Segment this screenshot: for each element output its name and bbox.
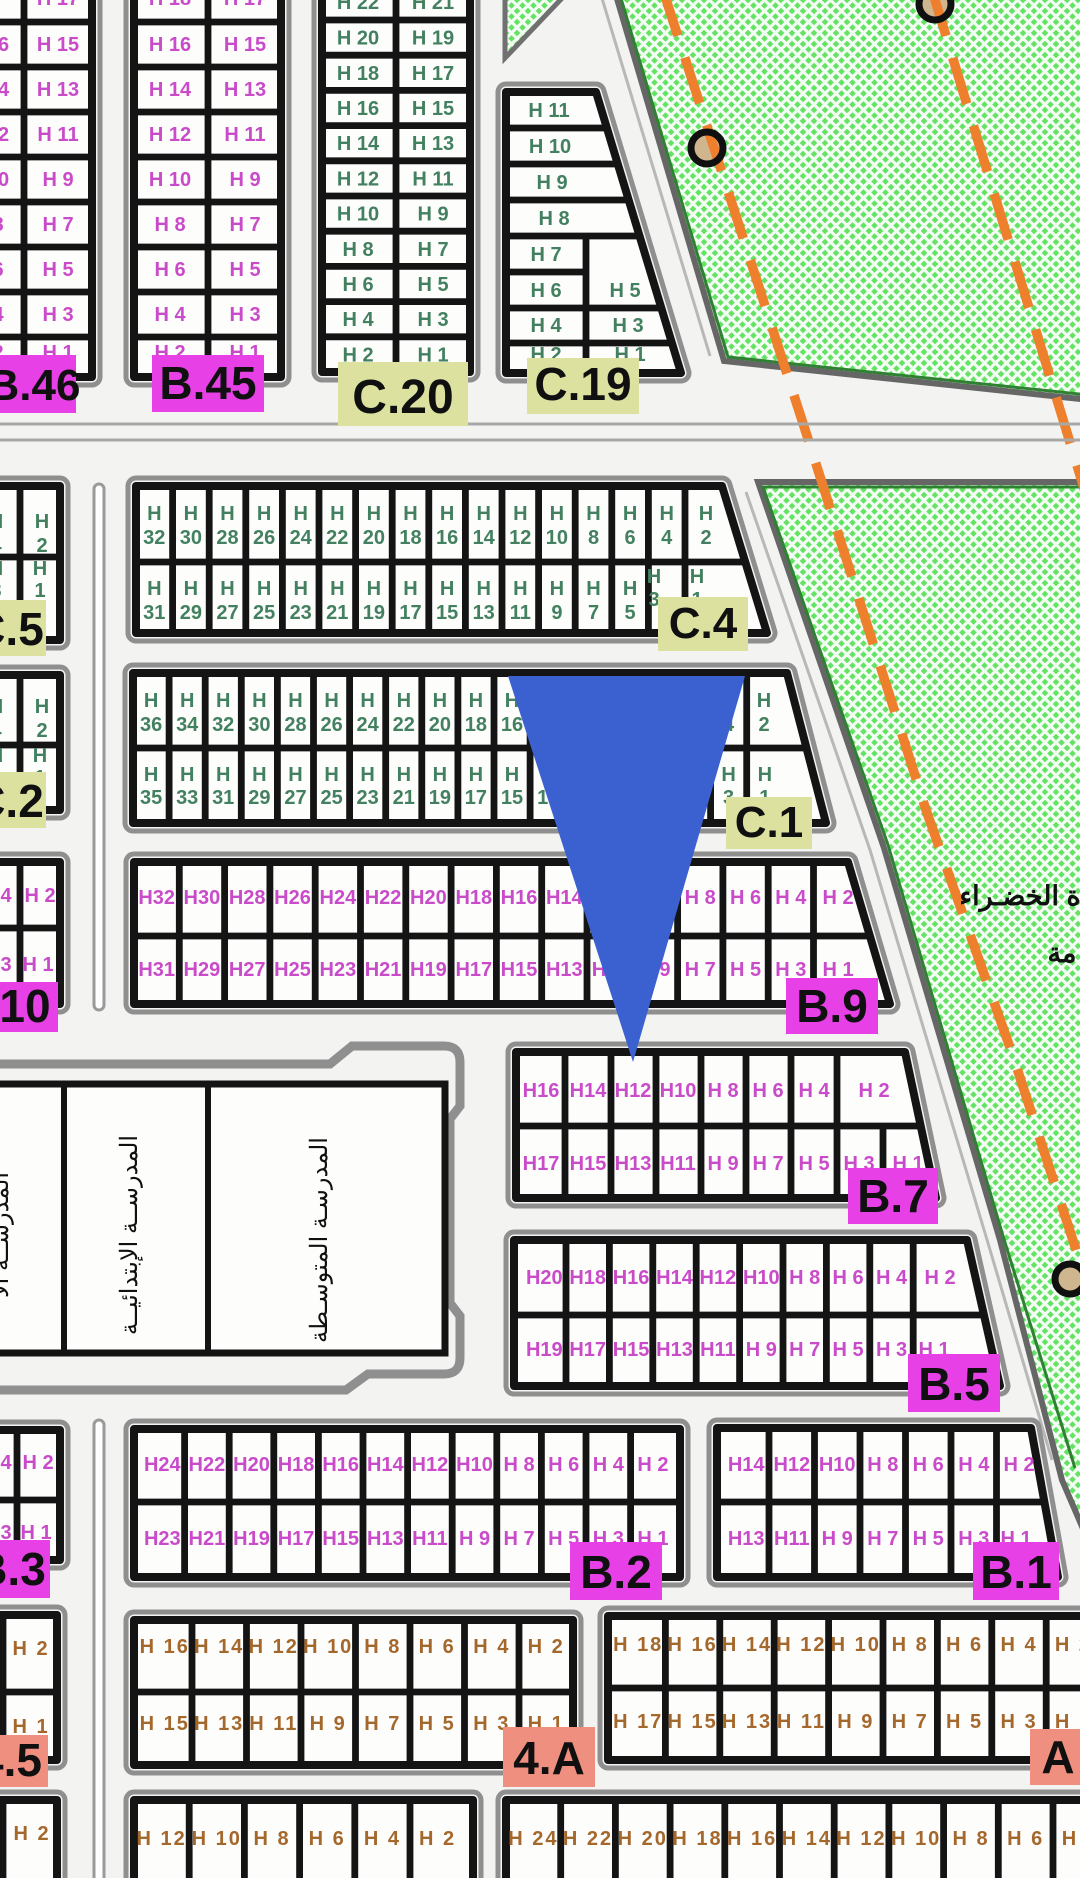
svg-text:H 9: H 9	[229, 169, 260, 191]
svg-text:29: 29	[248, 787, 270, 809]
svg-text:16: 16	[501, 714, 523, 736]
svg-text:H 12: H 12	[149, 124, 191, 146]
svg-text:H: H	[288, 764, 302, 786]
svg-text:B.10: B.10	[0, 980, 51, 1032]
svg-text:27: 27	[216, 602, 238, 624]
svg-text:C.20: C.20	[352, 371, 453, 424]
svg-text:H 20: H 20	[337, 28, 379, 50]
svg-text:H 12: H 12	[136, 1828, 186, 1850]
svg-text:H 8: H 8	[867, 1454, 898, 1476]
svg-text:28: 28	[284, 714, 306, 736]
svg-text:H14: H14	[656, 1267, 694, 1289]
svg-text:H 11: H 11	[224, 124, 265, 146]
svg-text:18: 18	[399, 527, 421, 549]
svg-text:H: H	[330, 503, 344, 525]
svg-text:H 6: H 6	[154, 259, 185, 281]
svg-text:H 6: H 6	[913, 1454, 944, 1476]
svg-text:H 8: H 8	[342, 239, 373, 261]
svg-text:H 19: H 19	[412, 28, 454, 50]
svg-text:المدرســة الإبتدائيــة: المدرســة الإبتدائيــة	[116, 1135, 143, 1335]
svg-text:19: 19	[429, 787, 451, 809]
svg-text:H 4: H 4	[1062, 1828, 1080, 1850]
svg-text:H 6: H 6	[309, 1828, 346, 1850]
svg-text:H20: H20	[526, 1267, 563, 1289]
svg-text:H: H	[476, 503, 490, 525]
svg-text:H: H	[623, 578, 637, 600]
svg-text:H 6: H 6	[946, 1634, 983, 1656]
svg-text:H 8: H 8	[952, 1828, 989, 1850]
svg-text:H 10: H 10	[337, 204, 379, 226]
svg-text:H17: H17	[455, 959, 492, 981]
svg-text:H 6: H 6	[1007, 1828, 1044, 1850]
svg-text:22: 22	[326, 527, 348, 549]
svg-text:27: 27	[284, 787, 306, 809]
svg-text:H 15: H 15	[412, 98, 454, 120]
svg-text:H: H	[513, 578, 527, 600]
svg-text:H10: H10	[660, 1080, 697, 1102]
svg-text:H 2: H 2	[1055, 1634, 1080, 1656]
svg-text:H: H	[252, 690, 266, 712]
svg-text:16: 16	[436, 527, 458, 549]
svg-text:4.5: 4.5	[0, 1734, 42, 1786]
svg-text:H 22: H 22	[563, 1828, 613, 1850]
svg-text:B.46: B.46	[0, 361, 80, 410]
svg-text:H 4: H 4	[154, 304, 186, 326]
svg-text:H11: H11	[660, 1153, 696, 1175]
svg-text:H 8: H 8	[0, 214, 4, 236]
svg-text:H 9: H 9	[536, 172, 567, 194]
svg-text:11: 11	[510, 602, 531, 624]
svg-text:H 18: H 18	[613, 1634, 663, 1656]
svg-text:H 2: H 2	[24, 885, 55, 907]
svg-text:B.9: B.9	[796, 980, 868, 1032]
svg-text:H 20: H 20	[618, 1828, 668, 1850]
svg-text:31: 31	[143, 602, 165, 624]
svg-text:9: 9	[551, 602, 562, 624]
svg-text:33: 33	[176, 787, 198, 809]
svg-text:H20: H20	[233, 1454, 270, 1476]
svg-text:H 18: H 18	[149, 0, 191, 10]
svg-text:H: H	[220, 578, 234, 600]
svg-text:H: H	[367, 578, 381, 600]
svg-text:H: H	[586, 578, 600, 600]
svg-text:H18: H18	[278, 1454, 315, 1476]
svg-text:H 16: H 16	[149, 34, 191, 56]
svg-text:H 14: H 14	[149, 79, 192, 101]
svg-text:H 13: H 13	[194, 1713, 244, 1735]
svg-text:H 9: H 9	[417, 204, 448, 226]
svg-text:H: H	[184, 503, 198, 525]
svg-text:H: H	[403, 503, 417, 525]
svg-text:H: H	[647, 566, 661, 588]
svg-text:H30: H30	[184, 887, 221, 909]
svg-text:H 4: H 4	[593, 1454, 625, 1476]
svg-text:B.1: B.1	[980, 1546, 1052, 1598]
svg-text:H24: H24	[144, 1454, 182, 1476]
svg-text:4.A: 4.A	[513, 1732, 585, 1784]
svg-text:H19: H19	[410, 959, 447, 981]
svg-text:H 7: H 7	[530, 244, 561, 266]
svg-text:H: H	[293, 503, 307, 525]
svg-text:H15: H15	[613, 1339, 650, 1361]
svg-text:H 11: H 11	[249, 1713, 298, 1735]
svg-text:C.5: C.5	[0, 603, 44, 655]
svg-text:H 9: H 9	[42, 169, 73, 191]
svg-text:H 7: H 7	[752, 1153, 783, 1175]
svg-text:H 10: H 10	[891, 1828, 941, 1850]
svg-text:H 2: H 2	[858, 1080, 889, 1102]
svg-text:23: 23	[356, 787, 378, 809]
svg-text:H 15: H 15	[667, 1711, 717, 1733]
svg-text:H: H	[550, 503, 564, 525]
svg-text:H10: H10	[456, 1454, 493, 1476]
svg-text:H16: H16	[523, 1080, 560, 1102]
svg-text:15: 15	[436, 602, 458, 624]
svg-text:H: H	[288, 690, 302, 712]
svg-text:H: H	[721, 764, 735, 786]
svg-text:26: 26	[320, 714, 342, 736]
svg-text:H11: H11	[700, 1339, 736, 1361]
svg-text:H: H	[252, 764, 266, 786]
svg-text:H 9: H 9	[837, 1711, 874, 1733]
svg-text:H 7: H 7	[364, 1713, 401, 1735]
svg-text:2: 2	[758, 714, 769, 736]
svg-text:H 7: H 7	[504, 1528, 535, 1550]
svg-text:H 17: H 17	[412, 63, 454, 85]
svg-text:34: 34	[176, 714, 199, 736]
svg-text:21: 21	[393, 787, 415, 809]
svg-text:H 5: H 5	[609, 280, 640, 302]
svg-text:H 6: H 6	[833, 1267, 864, 1289]
svg-text:H 13: H 13	[412, 133, 454, 155]
svg-text:H 12: H 12	[337, 168, 379, 190]
svg-text:H 14: H 14	[337, 133, 380, 155]
svg-text:H 9: H 9	[746, 1339, 777, 1361]
svg-text:H13: H13	[546, 959, 583, 981]
svg-text:H 16: H 16	[140, 1636, 190, 1658]
svg-text:H 3: H 3	[417, 309, 448, 331]
svg-text:5: 5	[625, 602, 636, 624]
svg-text:H 10: H 10	[192, 1828, 242, 1850]
svg-text:H 16: H 16	[0, 34, 9, 56]
svg-text:H17: H17	[569, 1339, 606, 1361]
svg-text:H 7: H 7	[867, 1528, 898, 1550]
svg-text:H 7: H 7	[42, 214, 73, 236]
svg-text:H 8: H 8	[789, 1267, 820, 1289]
svg-text:H 4: H 4	[0, 885, 12, 907]
svg-text:H: H	[433, 764, 447, 786]
svg-text:10: 10	[546, 527, 568, 549]
svg-text:H 17: H 17	[37, 0, 79, 10]
svg-text:H: H	[220, 503, 234, 525]
svg-text:H22: H22	[189, 1454, 226, 1476]
svg-text:H12: H12	[615, 1080, 652, 1102]
svg-text:H12: H12	[773, 1454, 810, 1476]
svg-text:H 14: H 14	[782, 1828, 832, 1850]
svg-text:H 4: H 4	[530, 315, 562, 337]
svg-text:A: A	[1041, 1731, 1074, 1783]
svg-text:12: 12	[509, 527, 531, 549]
svg-text:H31: H31	[138, 959, 175, 981]
svg-text:H: H	[144, 764, 158, 786]
svg-text:C.19: C.19	[534, 358, 631, 410]
svg-text:28: 28	[216, 527, 238, 549]
svg-text:H27: H27	[229, 959, 266, 981]
svg-text:H16: H16	[613, 1267, 650, 1289]
svg-text:H: H	[257, 503, 271, 525]
svg-text:24: 24	[356, 714, 379, 736]
svg-text:H 7: H 7	[685, 959, 716, 981]
svg-text:H: H	[440, 578, 454, 600]
svg-text:مة: مة	[1048, 938, 1077, 968]
svg-text:H11: H11	[774, 1528, 810, 1550]
svg-text:H 8: H 8	[504, 1454, 535, 1476]
svg-text:H: H	[360, 764, 374, 786]
svg-text:H 4: H 4	[0, 1452, 12, 1474]
svg-text:H 2: H 2	[822, 887, 853, 909]
svg-text:H: H	[367, 503, 381, 525]
svg-text:H 6: H 6	[0, 259, 4, 281]
svg-text:H 7: H 7	[892, 1711, 929, 1733]
svg-text:H13: H13	[367, 1528, 404, 1550]
svg-text:H 14: H 14	[194, 1636, 244, 1658]
svg-text:H: H	[360, 690, 374, 712]
svg-text:H 5: H 5	[946, 1711, 983, 1733]
svg-text:H29: H29	[184, 959, 221, 981]
svg-text:H 2: H 2	[13, 1823, 50, 1845]
svg-text:H 5: H 5	[419, 1713, 456, 1735]
svg-text:H15: H15	[322, 1528, 359, 1550]
svg-text:H 11: H 11	[777, 1711, 826, 1733]
svg-text:H 16: H 16	[667, 1634, 717, 1656]
svg-text:H 2: H 2	[419, 1828, 456, 1850]
svg-text:H: H	[35, 696, 49, 718]
svg-text:H: H	[659, 503, 673, 525]
svg-text:13: 13	[473, 602, 495, 624]
svg-text:H24: H24	[320, 887, 358, 909]
svg-text:H12: H12	[412, 1454, 449, 1476]
svg-text:H15: H15	[570, 1153, 607, 1175]
svg-text:H 14: H 14	[722, 1634, 772, 1656]
svg-text:2: 2	[36, 535, 47, 557]
svg-text:H 12: H 12	[249, 1636, 299, 1658]
svg-text:H: H	[324, 690, 338, 712]
svg-text:H: H	[690, 566, 704, 588]
svg-text:29: 29	[180, 602, 202, 624]
svg-text:H 15: H 15	[224, 34, 266, 56]
svg-text:H: H	[505, 764, 519, 786]
svg-text:H 1: H 1	[22, 954, 53, 976]
svg-text:H 5: H 5	[833, 1339, 864, 1361]
svg-text:H: H	[586, 503, 600, 525]
svg-text:H14: H14	[367, 1454, 405, 1476]
svg-text:H23: H23	[144, 1528, 181, 1550]
svg-text:H14: H14	[570, 1080, 608, 1102]
svg-text:15: 15	[501, 787, 523, 809]
svg-text:H 21: H 21	[412, 0, 454, 14]
svg-text:21: 21	[326, 602, 348, 624]
svg-text:H 6: H 6	[752, 1080, 783, 1102]
svg-text:H: H	[397, 764, 411, 786]
svg-text:36: 36	[140, 714, 162, 736]
svg-text:H19: H19	[233, 1528, 270, 1550]
svg-text:H: H	[184, 578, 198, 600]
svg-text:H 4: H 4	[958, 1454, 990, 1476]
svg-text:H 6: H 6	[730, 887, 761, 909]
svg-text:H: H	[757, 690, 771, 712]
svg-text:H 2: H 2	[12, 1638, 49, 1660]
svg-text:H: H	[397, 690, 411, 712]
svg-text:H22: H22	[365, 887, 402, 909]
svg-text:B.2: B.2	[580, 1546, 652, 1598]
svg-text:H 8: H 8	[538, 208, 569, 230]
svg-text:H 12: H 12	[776, 1634, 826, 1656]
svg-text:H14: H14	[728, 1454, 766, 1476]
svg-text:H: H	[0, 511, 3, 533]
svg-text:H10: H10	[819, 1454, 856, 1476]
svg-text:H 8: H 8	[685, 887, 716, 909]
svg-text:23: 23	[290, 602, 312, 624]
svg-text:H 24: H 24	[508, 1828, 558, 1850]
svg-text:6: 6	[625, 527, 636, 549]
svg-text:H: H	[144, 690, 158, 712]
svg-text:H: H	[324, 764, 338, 786]
svg-text:H17: H17	[523, 1153, 560, 1175]
svg-text:H 13: H 13	[224, 79, 266, 101]
svg-text:H 8: H 8	[707, 1080, 738, 1102]
svg-text:H: H	[33, 558, 47, 580]
svg-text:H: H	[147, 503, 161, 525]
svg-text:H 10: H 10	[0, 169, 9, 191]
svg-text:H28: H28	[229, 887, 266, 909]
svg-text:H13: H13	[656, 1339, 693, 1361]
svg-text:H 17: H 17	[613, 1711, 663, 1733]
svg-text:H: H	[216, 690, 230, 712]
svg-text:26: 26	[253, 527, 275, 549]
svg-text:B.45: B.45	[159, 357, 256, 409]
svg-text:H: H	[469, 690, 483, 712]
svg-text:B.7: B.7	[857, 1170, 929, 1222]
svg-text:H 6: H 6	[419, 1636, 456, 1658]
svg-text:H 2: H 2	[1003, 1454, 1034, 1476]
svg-text:H 6: H 6	[548, 1454, 579, 1476]
svg-text:H: H	[216, 764, 230, 786]
svg-text:H 2: H 2	[22, 1452, 53, 1474]
svg-text:H 5: H 5	[798, 1153, 829, 1175]
svg-text:H17: H17	[278, 1528, 315, 1550]
svg-text:H 12: H 12	[0, 124, 9, 146]
svg-text:H 6: H 6	[342, 274, 373, 296]
svg-text:H 11: H 11	[37, 124, 78, 146]
svg-text:H: H	[440, 503, 454, 525]
svg-text:H 10: H 10	[303, 1636, 353, 1658]
svg-text:H 5: H 5	[730, 959, 761, 981]
svg-text:H 4: H 4	[1000, 1634, 1037, 1656]
svg-text:H12: H12	[700, 1267, 737, 1289]
svg-text:H 3: H 3	[775, 959, 806, 981]
svg-text:H 10: H 10	[149, 169, 191, 191]
svg-text:H16: H16	[322, 1454, 359, 1476]
svg-text:H 7: H 7	[229, 214, 260, 236]
svg-text:30: 30	[180, 527, 202, 549]
svg-text:H 3: H 3	[42, 304, 73, 326]
svg-text:H18: H18	[455, 887, 492, 909]
svg-text:2: 2	[36, 720, 47, 742]
svg-text:H11: H11	[412, 1528, 448, 1550]
svg-text:H 2: H 2	[637, 1454, 668, 1476]
svg-text:H 4: H 4	[473, 1636, 510, 1658]
svg-text:H10: H10	[743, 1267, 780, 1289]
svg-text:8: 8	[588, 527, 599, 549]
svg-text:25: 25	[320, 787, 342, 809]
svg-text:H 14: H 14	[0, 79, 10, 101]
svg-text:H: H	[0, 558, 3, 580]
svg-text:H 4: H 4	[364, 1828, 401, 1850]
svg-text:17: 17	[399, 602, 421, 624]
svg-text:H: H	[293, 578, 307, 600]
svg-text:H15: H15	[501, 959, 538, 981]
svg-text:H: H	[469, 764, 483, 786]
svg-text:H16: H16	[501, 887, 538, 909]
svg-text:ة الخضـراء: ة الخضـراء	[959, 881, 1080, 913]
svg-text:H 4: H 4	[775, 887, 807, 909]
svg-text:31: 31	[212, 787, 234, 809]
svg-text:H 9: H 9	[822, 1528, 853, 1550]
svg-text:H13: H13	[615, 1153, 652, 1175]
svg-text:B.3: B.3	[0, 1543, 46, 1595]
svg-text:3: 3	[0, 580, 2, 602]
svg-text:H 13: H 13	[37, 79, 79, 101]
svg-text:H21: H21	[189, 1528, 226, 1550]
svg-text:H 3: H 3	[612, 315, 643, 337]
svg-text:32: 32	[212, 714, 234, 736]
svg-text:H 9: H 9	[310, 1713, 347, 1735]
svg-text:H19: H19	[526, 1339, 563, 1361]
svg-text:H18: H18	[569, 1267, 606, 1289]
svg-text:المدرسـة المتوسـطة: المدرسـة المتوسـطة	[306, 1137, 333, 1343]
svg-text:H: H	[758, 764, 772, 786]
svg-text:H 8: H 8	[253, 1828, 290, 1850]
svg-text:H25: H25	[274, 959, 311, 981]
svg-text:2: 2	[700, 527, 711, 549]
svg-text:35: 35	[140, 787, 162, 809]
svg-text:H 10: H 10	[529, 136, 571, 158]
svg-text:H 15: H 15	[37, 34, 79, 56]
svg-text:H 1: H 1	[822, 959, 853, 981]
svg-text:H 2: H 2	[528, 1636, 565, 1658]
svg-text:H 5: H 5	[913, 1528, 944, 1550]
svg-text:H 5: H 5	[417, 274, 448, 296]
svg-text:H 4: H 4	[342, 309, 374, 331]
svg-text:H 7: H 7	[789, 1339, 820, 1361]
svg-text:H: H	[403, 578, 417, 600]
svg-text:17: 17	[465, 787, 487, 809]
svg-text:H 9: H 9	[459, 1528, 490, 1550]
svg-text:C.1: C.1	[735, 798, 803, 847]
svg-text:24: 24	[290, 527, 313, 549]
svg-text:4: 4	[661, 527, 673, 549]
svg-text:18: 18	[465, 714, 487, 736]
svg-text:H26: H26	[274, 887, 311, 909]
svg-text:H 3: H 3	[876, 1339, 907, 1361]
svg-text:H 8: H 8	[364, 1636, 401, 1658]
svg-text:H13: H13	[728, 1528, 765, 1550]
svg-text:H 12: H 12	[836, 1828, 886, 1850]
svg-text:H 16: H 16	[727, 1828, 777, 1850]
svg-text:H 5: H 5	[42, 259, 73, 281]
svg-text:32: 32	[143, 527, 165, 549]
svg-text:H 11: H 11	[528, 100, 569, 122]
